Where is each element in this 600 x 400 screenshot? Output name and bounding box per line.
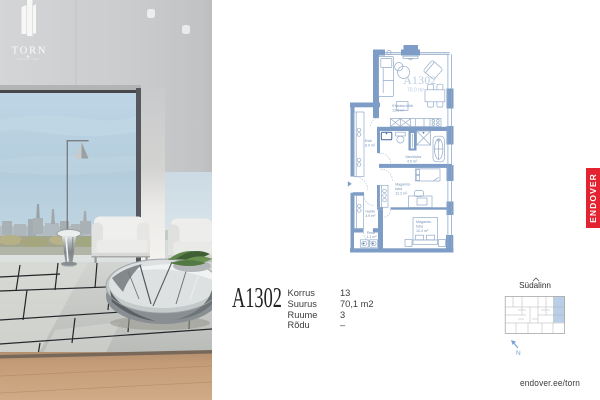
- svg-text:12.2 m²: 12.2 m²: [395, 192, 408, 196]
- svg-text:4.5 m²: 4.5 m²: [407, 159, 418, 163]
- svg-text:Garde: Garde: [365, 210, 375, 214]
- svg-text:Magamis-: Magamis-: [416, 220, 433, 224]
- svg-text:KESKLINN: KESKLINN: [17, 57, 39, 61]
- svg-text:tuba: tuba: [416, 225, 423, 229]
- svg-text:70.0 m²: 70.0 m²: [407, 88, 424, 94]
- svg-text:tuba: tuba: [395, 187, 402, 191]
- svg-text:Esik: Esik: [365, 139, 372, 143]
- svg-text:Elutuba köök: Elutuba köök: [392, 104, 413, 108]
- svg-text:Magamis-: Magamis-: [395, 183, 412, 187]
- svg-text:10.4 m²: 10.4 m²: [416, 229, 429, 233]
- svg-text:3.9 m²: 3.9 m²: [365, 214, 376, 218]
- svg-text:22.6 m²: 22.6 m²: [392, 109, 405, 113]
- svg-text:8.9 m²: 8.9 m²: [365, 144, 376, 148]
- svg-text:TORN: TORN: [12, 46, 48, 57]
- svg-text:A1302: A1302: [403, 75, 436, 87]
- svg-text:1.1 m²: 1.1 m²: [366, 235, 377, 239]
- svg-text:N: N: [516, 350, 521, 357]
